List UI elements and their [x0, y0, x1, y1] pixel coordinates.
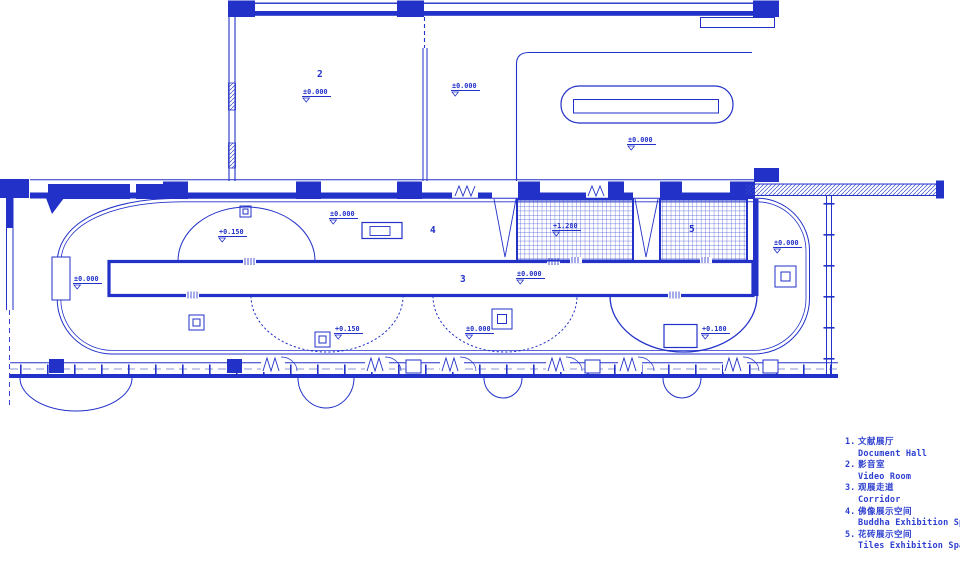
- legend-number: 1.: [845, 437, 855, 449]
- legend-label-en: Document Hall: [858, 449, 960, 461]
- svg-text:±0.000: ±0.000: [330, 210, 355, 218]
- room-label-buddha-space: 4: [430, 225, 436, 236]
- bottom-exterior-wall: [10, 359, 838, 378]
- elevation-marker: +0.150: [334, 325, 363, 339]
- room-label-video-room: 2: [317, 69, 323, 80]
- legend-label-zh: 影音室: [858, 460, 885, 470]
- elevation-marker: +0.180: [701, 325, 730, 339]
- column: [608, 182, 624, 200]
- legend: 1.文献展厅 Document Hall 2.影音室 Video Room 3.…: [845, 437, 960, 553]
- lintel-outline: [701, 18, 775, 28]
- svg-text:+0.150: +0.150: [219, 228, 244, 236]
- south-window-springs: [261, 356, 759, 372]
- column: [660, 182, 682, 200]
- entrance-door-swings: [20, 378, 701, 411]
- legend-item-video-room: 2.影音室 Video Room: [845, 460, 960, 483]
- elevation-marker: +0.150: [218, 228, 247, 242]
- document-hall-partition: [517, 53, 753, 182]
- floor-plan-drawing: 2 3 4 5 ±0.000 ±0.000 ±0.000 ±0.000 +0.1…: [0, 0, 960, 561]
- legend-label-zh: 花砖展示空间: [858, 530, 912, 540]
- video-room-left-wall: [229, 17, 236, 181]
- door-leaf-triangle: [46, 198, 64, 214]
- svg-text:±0.000: ±0.000: [517, 270, 542, 278]
- column: [163, 182, 188, 200]
- pivot-door-leaves: [635, 199, 658, 257]
- elevation-marker: ±0.000: [302, 88, 331, 102]
- tile-platforms: [517, 200, 747, 264]
- elevation-marker: ±0.000: [627, 136, 656, 150]
- legend-item-document-hall: 1.文献展厅 Document Hall: [845, 437, 960, 460]
- pier-outline: [763, 360, 778, 373]
- pier-outline: [406, 360, 421, 373]
- right-exterior-wall: [824, 196, 835, 378]
- column-grid-symbol: [240, 206, 251, 217]
- legend-label-en: Buddha Exhibition Space: [858, 518, 960, 530]
- elevation-marker: ±0.000: [329, 210, 358, 224]
- room-label-tiles-space: 5: [689, 224, 695, 235]
- elevation-marker: ±0.000: [773, 239, 802, 253]
- svg-text:±0.000: ±0.000: [452, 82, 477, 90]
- corridor: [109, 262, 753, 296]
- column: [518, 182, 540, 200]
- column-grid-symbol: [315, 332, 330, 347]
- floor-plan-page: 2 3 4 5 ±0.000 ±0.000 ±0.000 ±0.000 +0.1…: [0, 0, 960, 561]
- column: [753, 1, 779, 18]
- document-hall-display-table: [561, 86, 733, 123]
- room-label-corridor: 3: [460, 274, 466, 285]
- pier-outline: [585, 360, 600, 373]
- column: [228, 1, 255, 18]
- legend-number: 4.: [845, 507, 855, 519]
- legend-label-en: Corridor: [858, 495, 960, 507]
- legend-item-corridor: 3.观展走道 Corridor: [845, 483, 960, 506]
- svg-text:+1.280: +1.280: [553, 222, 578, 230]
- corridor-end-wall: [753, 199, 759, 296]
- legend-number: 5.: [845, 530, 855, 542]
- legend-label-en: Tiles Exhibition Space: [858, 541, 960, 553]
- legend-label-zh: 观展走道: [858, 483, 894, 493]
- svg-text:±0.000: ±0.000: [774, 239, 799, 247]
- legend-number: 2.: [845, 460, 855, 472]
- elevation-marker: ±0.000: [73, 275, 102, 289]
- legend-label-en: Video Room: [858, 472, 960, 484]
- hall-top-wall: [0, 179, 755, 257]
- window-hatch: [229, 143, 236, 168]
- legend-item-buddha-space: 4.佛像展示空间 Buddha Exhibition Space: [845, 507, 960, 530]
- column: [227, 359, 242, 373]
- column: [397, 1, 424, 18]
- column: [397, 182, 422, 200]
- exhibit-table: [664, 325, 697, 348]
- svg-text:±0.000: ±0.000: [303, 88, 328, 96]
- column: [754, 168, 779, 182]
- buddha-area-table: [362, 223, 402, 239]
- legend-label-zh: 佛像展示空间: [858, 507, 912, 517]
- room-divider-wall: [423, 17, 427, 181]
- column-grid-symbol: [775, 266, 796, 287]
- svg-text:+0.180: +0.180: [702, 325, 727, 333]
- legend-item-tiles-space: 5.花砖展示空间 Tiles Exhibition Space: [845, 530, 960, 553]
- column-grid-symbol: [189, 315, 204, 330]
- legend-number: 3.: [845, 483, 855, 495]
- window-hatch: [229, 83, 236, 110]
- exhibit-arc-upper: [178, 207, 315, 261]
- svg-text:±0.000: ±0.000: [466, 325, 491, 333]
- legend-label-zh: 文献展厅: [858, 437, 894, 447]
- elevation-marker: ±0.000: [465, 325, 494, 339]
- svg-text:±0.000: ±0.000: [628, 136, 653, 144]
- svg-text:+0.150: +0.150: [335, 325, 360, 333]
- elevation-marker: ±0.000: [451, 82, 480, 96]
- display-case: [52, 257, 70, 300]
- exterior-wall-hatched-strip: [745, 181, 944, 199]
- column-grid-symbol: [492, 309, 512, 329]
- pivot-door-leaves: [494, 199, 516, 257]
- column: [296, 182, 321, 200]
- svg-text:±0.000: ±0.000: [74, 275, 99, 283]
- column: [49, 359, 64, 373]
